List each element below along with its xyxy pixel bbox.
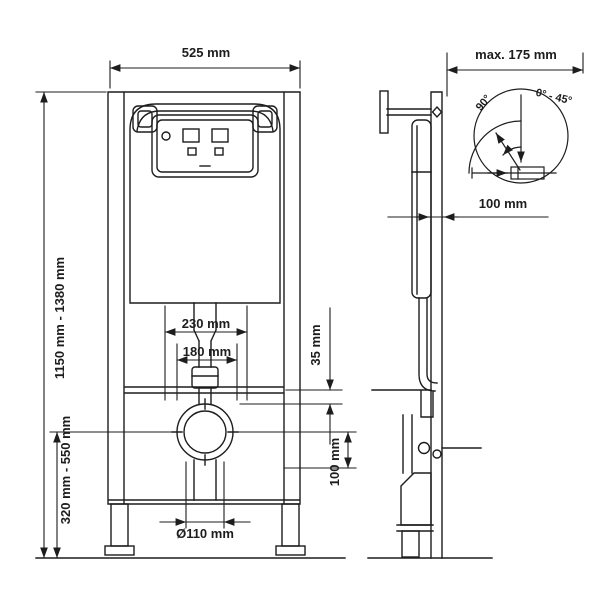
dim-bolt-230-label: 230 mm [182,316,230,331]
support-foot-right [276,504,305,555]
arc-90deg [469,121,521,173]
dim-arc-angle-label: 90° [474,93,494,113]
frame-outline [108,92,300,504]
dim-offset-35-label: 35 mm [308,324,323,365]
dim-pipe-offset-label: 100 mm [479,196,527,211]
wall-bracket [380,91,442,133]
flush-button-right [212,129,228,142]
cistern-profile [412,120,431,298]
dim-frame-width-label: 525 mm [182,45,230,60]
dim-swivel-range-label: 0° - 45° [534,87,573,108]
support-foot-side [397,415,441,557]
ext-drain-diameter [186,462,224,528]
dim-drain-diameter-label: Ø110 mm [176,526,234,541]
panel-valve-port [162,132,170,140]
flush-pipe-side [419,298,437,417]
dim-frame-height-label: 1150 mm - 1380 mm [52,257,67,379]
fixing-marker [433,107,442,117]
installation-frame-drawing: 525 mm 1150 mm - 1380 mm 230 mm 180 mm 3… [0,0,600,600]
mounting-rail [431,92,442,558]
front-view-dimensions [36,61,356,558]
pipe-sleeve [192,367,218,388]
ext-offset-35 [240,390,342,404]
ext-frame-width [110,61,300,88]
dim-max-depth-label: max. 175 mm [475,47,557,62]
adjustment-hole [419,443,430,454]
support-foot-left [105,504,134,555]
locking-bolt [433,450,441,458]
dim-outlet-range-label: 320 mm - 550 mm [58,416,73,524]
flush-button-left [183,129,199,142]
drain-circle [172,399,238,500]
drain-stub [194,460,216,500]
technical-drawing-page: 525 mm 1150 mm - 1380 mm 230 mm 180 mm 3… [0,0,600,600]
actuator-panel [152,115,258,177]
dim-outlet-offset-label: 100 mm [327,438,342,486]
side-view [368,91,492,558]
dim-bolt-180-label: 180 mm [183,344,231,359]
